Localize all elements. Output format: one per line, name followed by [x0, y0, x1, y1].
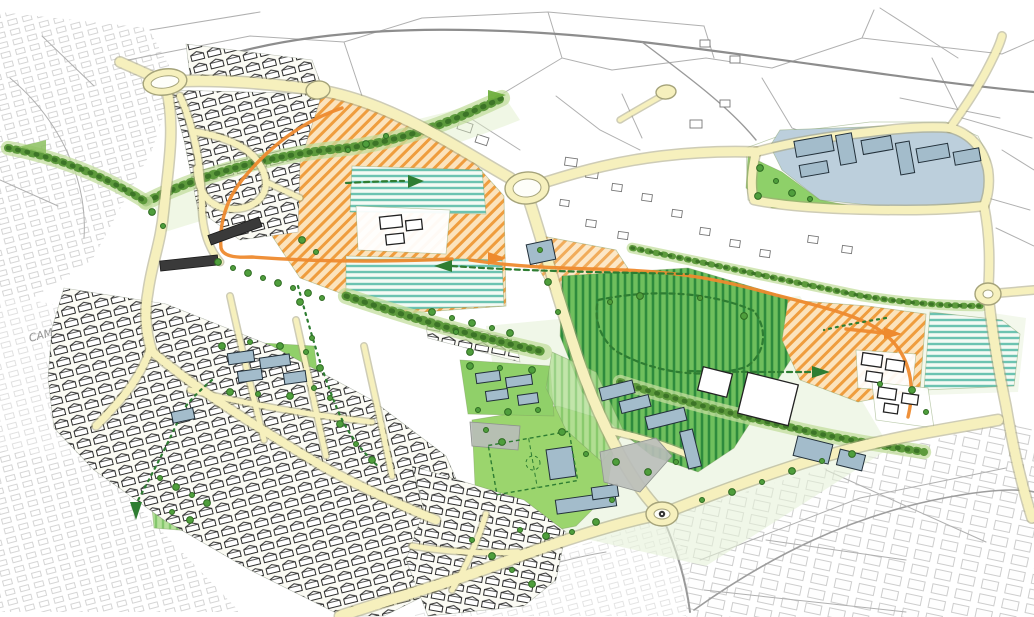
tree: [369, 457, 376, 464]
tree: [499, 439, 506, 446]
roundabout-south-clocktower-clock-face: [661, 513, 663, 515]
existing-farm-building: [700, 227, 711, 235]
field-boundary: [900, 98, 1000, 118]
large-white-building: [861, 353, 882, 368]
tree: [215, 259, 222, 266]
tree: [741, 313, 748, 320]
existing-farm-building: [612, 183, 623, 191]
tree: [593, 519, 600, 526]
large-white-building: [386, 233, 405, 245]
tree: [518, 528, 523, 533]
tree: [467, 349, 474, 356]
existing-farm-building: [690, 120, 702, 128]
existing-farm-building: [565, 157, 578, 167]
tree: [613, 459, 620, 466]
existing-farm-building: [760, 249, 771, 257]
tree: [490, 326, 495, 331]
existing-farm-building: [808, 235, 819, 243]
tree: [277, 343, 284, 350]
tree: [149, 209, 156, 216]
field-boundary: [548, 12, 612, 70]
large-white-building: [901, 393, 918, 405]
tree: [454, 330, 459, 335]
tree: [287, 393, 294, 400]
tree: [909, 387, 916, 394]
tree: [346, 148, 351, 153]
tree: [450, 316, 455, 321]
tree: [275, 280, 282, 287]
tree: [305, 290, 312, 297]
tree: [505, 409, 512, 416]
existing-farm-building: [730, 56, 740, 63]
tree: [173, 484, 180, 491]
mini-roundabout-lane: [655, 84, 676, 100]
tree: [543, 533, 550, 540]
tree: [363, 141, 370, 148]
tree: [314, 250, 319, 255]
tree: [507, 330, 514, 337]
tree: [297, 299, 304, 306]
tree: [299, 237, 306, 244]
existing-farm-building: [720, 100, 730, 107]
tree: [674, 460, 679, 465]
field-boundary: [996, 228, 1034, 246]
existing-farm-building: [586, 219, 597, 227]
field-boundary: [344, 42, 362, 96]
field-boundary: [128, 18, 422, 60]
existing-farm-building: [642, 193, 653, 201]
field-boundary: [880, 8, 958, 58]
tree: [729, 489, 736, 496]
large-white-building: [379, 215, 402, 229]
tree: [757, 165, 764, 172]
tree: [429, 309, 436, 316]
tree: [312, 386, 317, 391]
tree: [556, 310, 561, 315]
field-boundary: [150, 12, 260, 30]
tree: [219, 343, 226, 350]
blue-building: [546, 446, 576, 479]
tree: [337, 421, 344, 428]
field-boundary: [422, 12, 704, 26]
tree: [245, 270, 252, 277]
tree: [467, 363, 474, 370]
tree: [170, 510, 175, 515]
roundabout-east-island: [983, 290, 993, 298]
existing-farm-building: [560, 199, 570, 206]
tree: [190, 493, 195, 498]
tree: [878, 382, 883, 387]
tree: [760, 480, 765, 485]
terrace-row-dark: [160, 255, 219, 271]
large-white-building: [406, 219, 423, 231]
field-boundary: [612, 58, 772, 70]
pocket-plaza: [470, 422, 520, 450]
tree: [187, 517, 194, 524]
tree: [484, 428, 489, 433]
large-white-building: [877, 387, 896, 400]
tree: [161, 224, 166, 229]
farmstead-pocket: [356, 206, 450, 254]
existing-farm-building: [618, 231, 629, 239]
tree: [310, 336, 315, 341]
tree: [849, 451, 856, 458]
tree: [384, 134, 389, 139]
tree: [570, 530, 575, 535]
tree: [470, 538, 475, 543]
masterplan-illustration: CAM: [0, 0, 1034, 617]
farm-track: [556, 96, 640, 150]
tree: [789, 190, 796, 197]
tree: [498, 366, 503, 371]
tree: [789, 468, 796, 475]
tree: [538, 248, 543, 253]
existing-farm-building: [842, 245, 853, 253]
tree: [774, 179, 779, 184]
tree: [328, 396, 333, 401]
field-boundary: [1002, 150, 1034, 170]
tree: [645, 469, 652, 476]
large-white-building: [885, 359, 904, 372]
tree: [261, 276, 266, 281]
tree: [545, 279, 552, 286]
tree: [698, 296, 703, 301]
tree: [317, 365, 324, 372]
tree: [489, 553, 496, 560]
tree: [158, 476, 163, 481]
tree: [608, 300, 613, 305]
tree: [536, 408, 541, 413]
tree: [584, 452, 589, 457]
tree: [231, 266, 236, 271]
tree: [700, 498, 705, 503]
tree: [808, 197, 813, 202]
tree: [559, 429, 566, 436]
tree: [227, 389, 234, 396]
tree: [755, 193, 762, 200]
tree: [529, 581, 536, 588]
large-white-building: [883, 403, 898, 414]
tree: [924, 410, 929, 415]
existing-farm-building: [672, 209, 683, 217]
tree: [637, 293, 644, 300]
blue-building: [283, 371, 306, 385]
tree: [304, 350, 309, 355]
existing-farm-building: [700, 40, 710, 47]
tree: [529, 367, 536, 374]
tree: [610, 498, 615, 503]
tree: [256, 392, 261, 397]
tree: [820, 459, 825, 464]
tree: [204, 500, 211, 507]
existing-farm-building: [730, 239, 741, 247]
tree: [469, 320, 476, 327]
blue-building: [517, 393, 538, 406]
tree: [291, 286, 296, 291]
tree: [248, 340, 253, 345]
tree: [354, 442, 359, 447]
tree: [476, 408, 481, 413]
field-boundary: [862, 10, 874, 38]
masterplan-canvas: CAM: [0, 0, 1034, 617]
tree: [510, 568, 515, 573]
tree: [320, 296, 325, 301]
